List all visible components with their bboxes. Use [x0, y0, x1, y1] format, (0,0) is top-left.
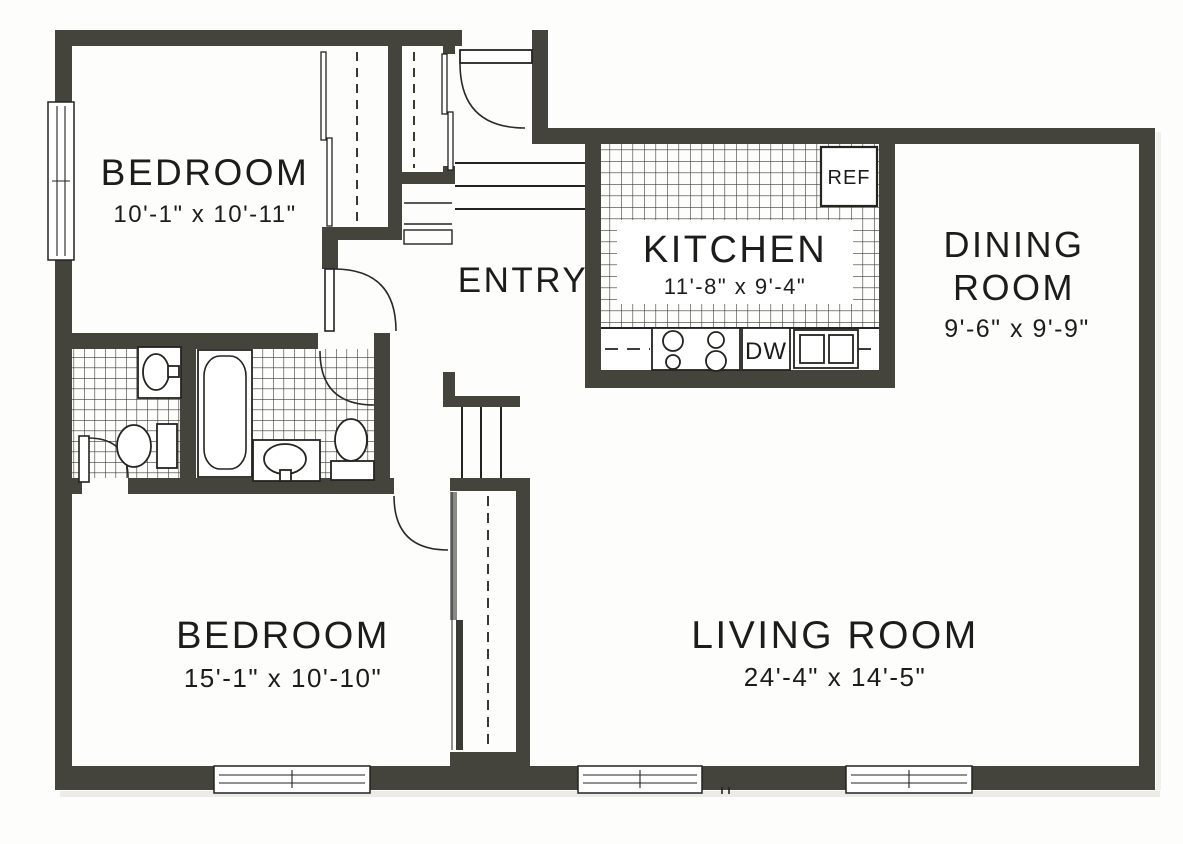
passage-wall-top — [443, 396, 520, 407]
kitchen-counter: DW — [601, 328, 879, 371]
kitchen-label-group: KITCHEN 11'-8" x 9'-4" — [643, 229, 827, 299]
hall-closet-wall-bottom — [450, 752, 530, 766]
burner-icon — [708, 332, 724, 348]
dining-room-label-group: DINING ROOM 9'-6" x 9'-9" — [944, 224, 1090, 343]
hall-closet-wall-top — [450, 478, 530, 491]
kitchen-wall-right — [879, 144, 895, 388]
closet-divider-wall — [388, 46, 402, 240]
dining-room-label-line1: DINING — [944, 224, 1085, 265]
entry-wall-stub-top — [443, 46, 455, 54]
bedroom2-label-group: BEDROOM 15'-1" x 10'-10" — [176, 615, 390, 693]
kitchen-wall-bottom — [585, 370, 895, 388]
kitchen-dimensions: 11'-8" x 9'-4" — [664, 274, 806, 299]
exterior-wall-right — [1139, 128, 1155, 790]
kitchen-label: KITCHEN — [643, 229, 827, 271]
faucet-icon — [280, 470, 291, 481]
living-room-window-2 — [846, 766, 972, 793]
floor-plan-drawing: DW REF BEDROOM 10'-1" x 10'-11" KITCHEN … — [0, 0, 1183, 844]
refrigerator-label: REF — [828, 167, 871, 189]
bedroom1-label-group: BEDROOM 10'-1" x 10'-11" — [101, 152, 310, 228]
floor-plan-page: DW REF BEDROOM 10'-1" x 10'-11" KITCHEN … — [0, 0, 1183, 844]
bedroom1-wall-right-stub — [322, 238, 338, 269]
scan-shadow-right — [1156, 132, 1161, 790]
exterior-wall-top-east — [532, 128, 1155, 144]
closet-a-sliding-door-panel — [327, 138, 332, 226]
closet-a-sliding-door-panel — [321, 52, 326, 140]
kitchen-sink — [794, 330, 858, 368]
exterior-wall-entry-step — [532, 30, 548, 144]
bathroom-wall-right — [374, 333, 390, 494]
living-room-label: LIVING ROOM — [691, 614, 979, 657]
burner-icon — [663, 331, 683, 351]
entry-label: ENTRY — [458, 261, 589, 300]
bedroom2-dimensions: 15'-1" x 10'-10" — [184, 663, 382, 693]
closet-b-sliding-door-panel — [442, 54, 447, 114]
bathroom2-vanity-sink — [253, 440, 320, 481]
refrigerator: REF — [821, 147, 877, 206]
exterior-wall-top-west — [55, 30, 462, 46]
dishwasher: DW — [742, 328, 790, 370]
hall-closet-sliding-door-panel — [456, 620, 463, 750]
living-room-window-1 — [578, 766, 702, 793]
bathtub-inner — [204, 356, 246, 469]
stove — [652, 328, 740, 371]
bathroom1-vanity-sink — [138, 347, 181, 398]
faucet-icon — [168, 366, 179, 377]
bedroom1-dimensions: 10'-1" x 10'-11" — [113, 201, 296, 228]
bathtub — [198, 350, 252, 477]
dishwasher-label: DW — [745, 338, 787, 365]
bedroom2-label: BEDROOM — [176, 615, 390, 657]
bedroom2-window — [214, 766, 370, 793]
burner-icon — [706, 351, 726, 371]
burner-icon — [666, 355, 680, 369]
bathroom-wall-divider — [180, 349, 196, 478]
dining-room-dimensions: 9'-6" x 9'-9" — [944, 315, 1089, 343]
bedroom1-window — [48, 102, 74, 260]
hall-closet-wall-right — [516, 490, 530, 766]
living-room-dimensions: 24'-4" x 14'-5" — [744, 662, 926, 692]
dining-room-label-line2: ROOM — [953, 267, 1075, 308]
hall-closet-sliding-door-panel — [450, 492, 457, 620]
bedroom1-label: BEDROOM — [101, 152, 310, 193]
closet-b-sliding-door-panel — [448, 112, 453, 170]
bathroom-wall-top — [72, 333, 318, 349]
